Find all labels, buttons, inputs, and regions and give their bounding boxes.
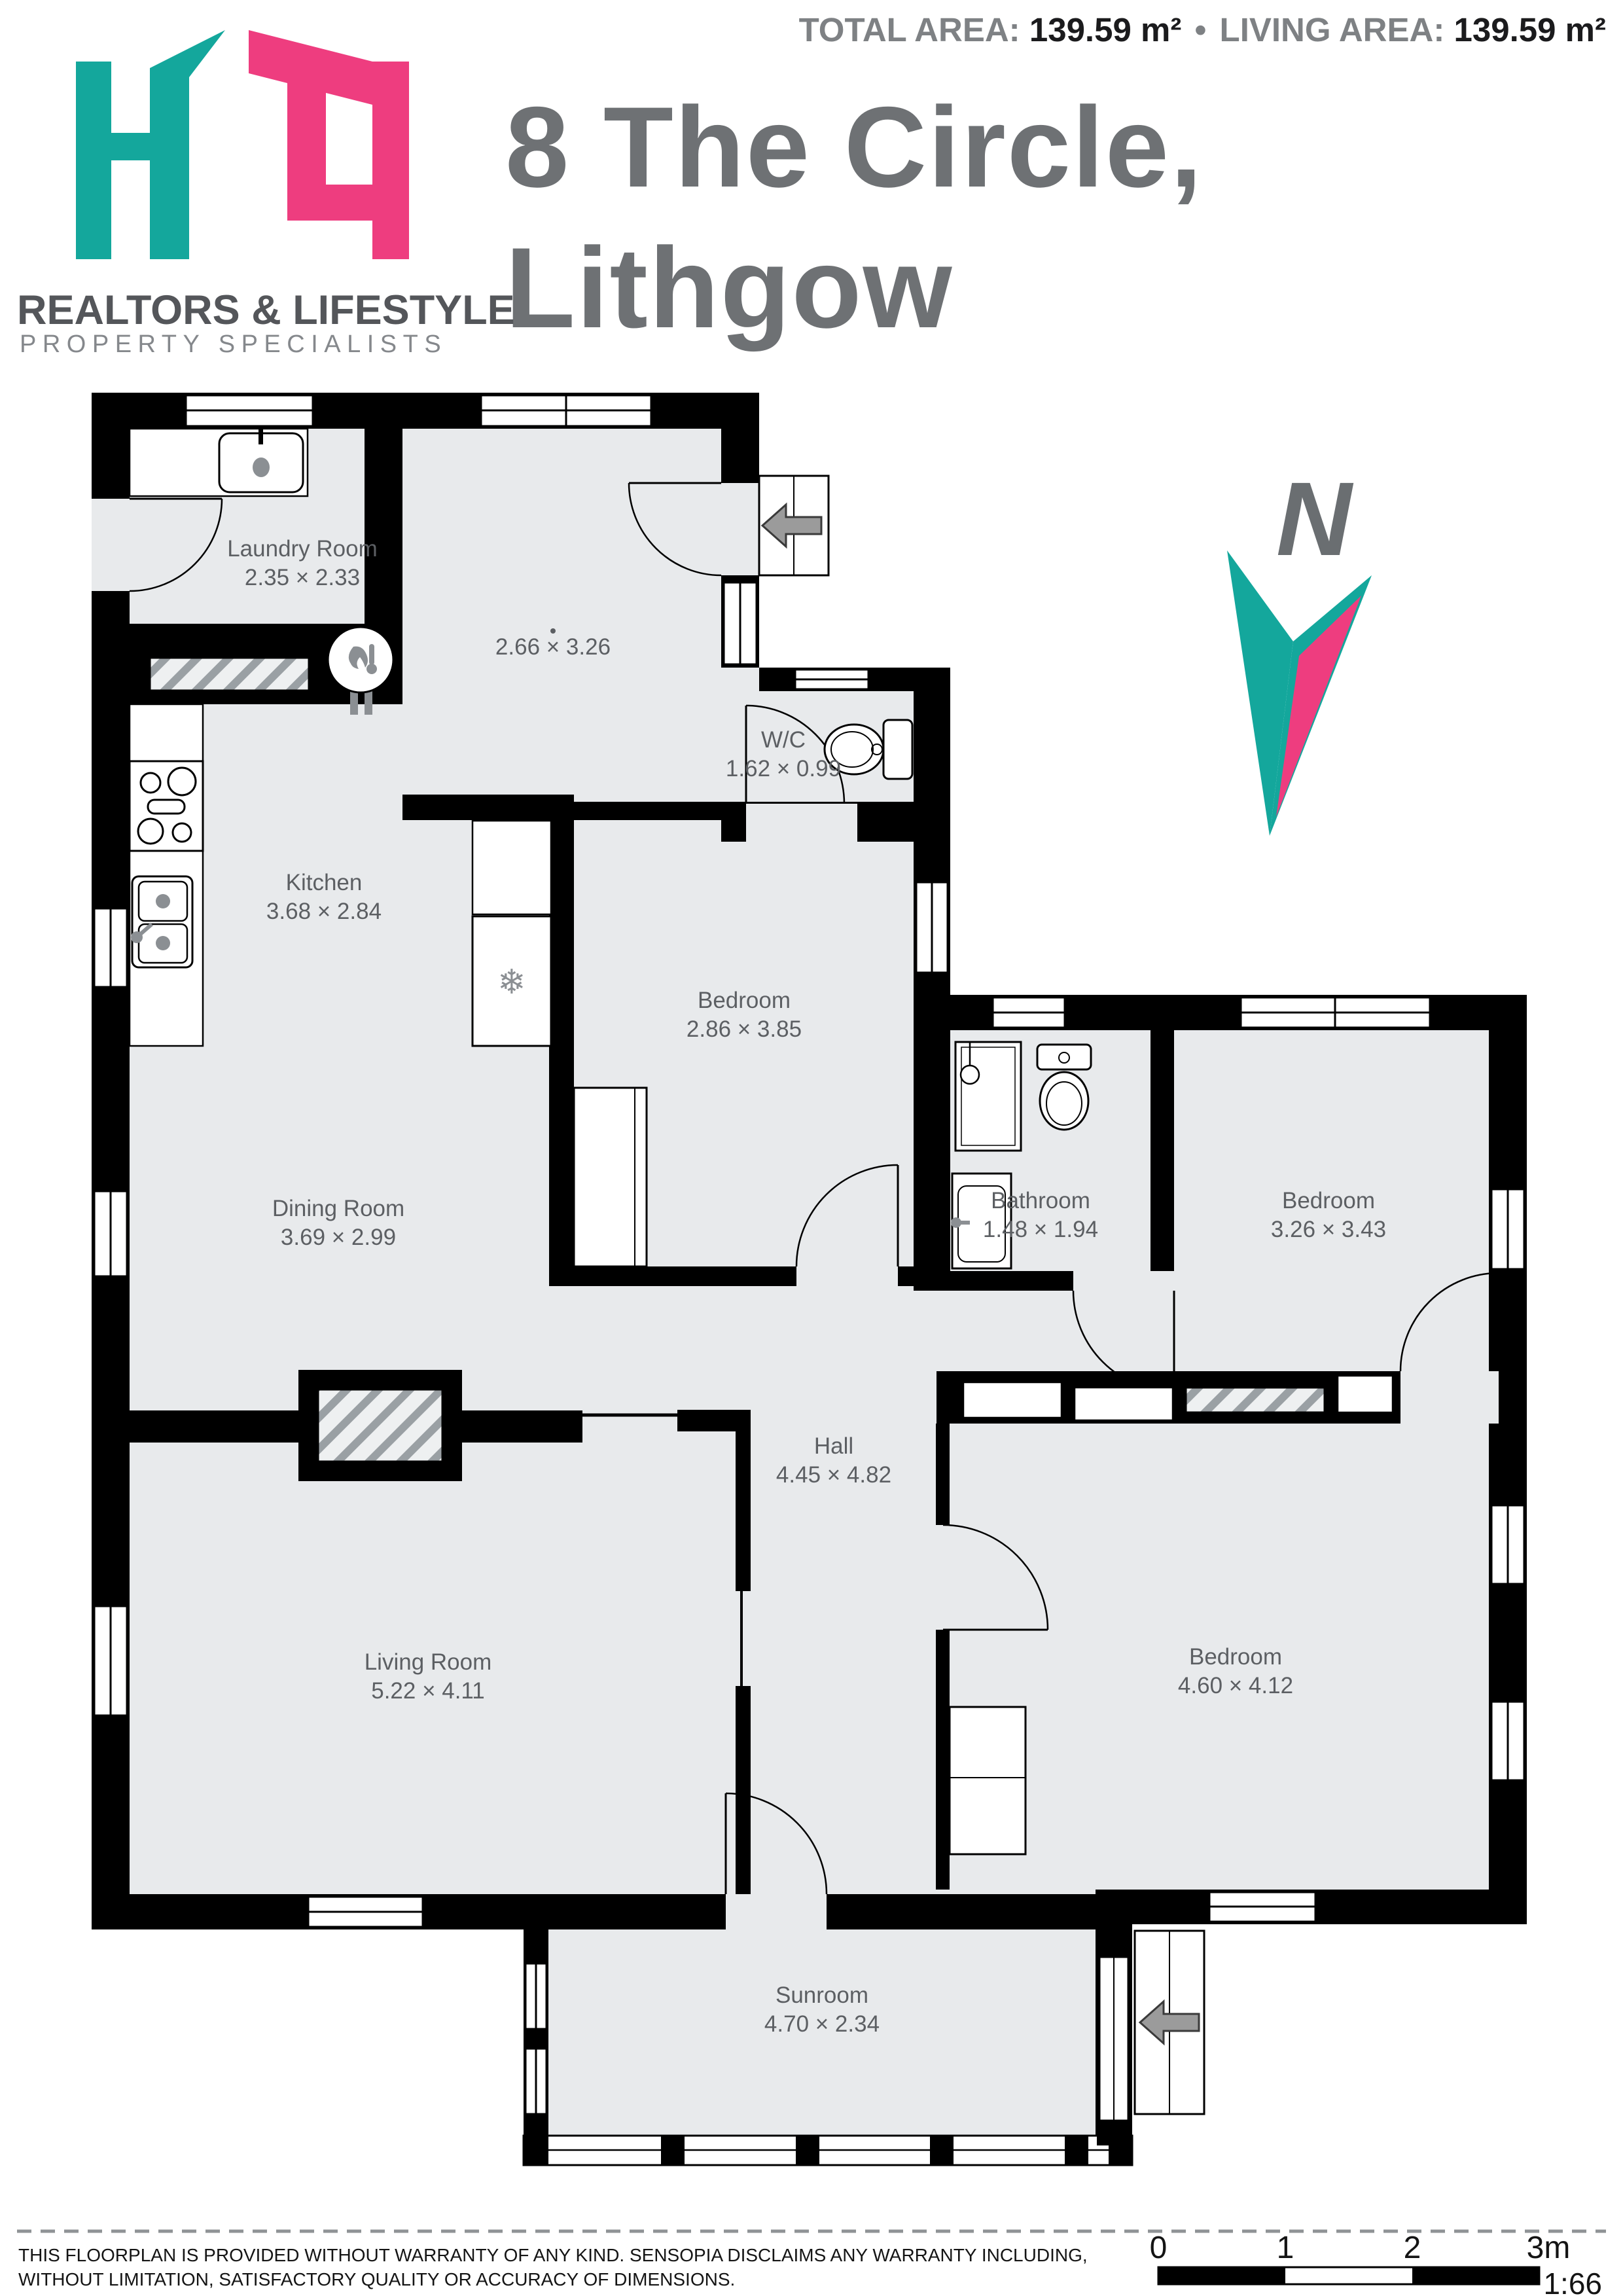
wardrobe-bedroom-bottom	[950, 1707, 1026, 1854]
room-dims-wc: 1.62 × 0.99	[726, 756, 841, 781]
kitchen-sink	[131, 876, 192, 967]
room-dims-kitchen: 3.68 × 2.84	[266, 899, 382, 924]
kitchen-counter	[130, 704, 203, 1046]
room-label-bathroom: Bathroom	[991, 1188, 1090, 1213]
footer: THIS FLOORPLAN IS PROVIDED WITHOUT WARRA…	[17, 2231, 1606, 2296]
room-dims-bedroom-right: 3.26 × 3.43	[1271, 1217, 1386, 1242]
room-label-hall: Hall	[814, 1433, 853, 1459]
room-label-laundry: Laundry Room	[227, 536, 378, 562]
entry-porch-bottom	[1135, 1931, 1204, 2114]
room-dims-bedroom-bottom: 4.60 × 4.12	[1178, 1673, 1293, 1698]
total-area-value: 139.59 m²	[1029, 11, 1182, 48]
scale-tick-0: 0	[1150, 2231, 1168, 2265]
room-dims-sunroom: 4.70 × 2.34	[764, 2011, 880, 2037]
entry-porch-top	[759, 476, 829, 575]
scale-tick-1: 1	[1277, 2231, 1294, 2265]
scale-ratio: 1:66	[1543, 2267, 1602, 2296]
scale-bar: 0 1 2 3m 1:66	[1150, 2231, 1602, 2296]
fridge: ❄	[473, 916, 551, 1046]
room-label-bedroom-mid: Bedroom	[698, 988, 791, 1013]
page-title-line1: 8 The Circle,	[505, 77, 1204, 218]
room-dims-entry: 2.66 × 3.26	[495, 634, 611, 660]
room-label-sunroom: Sunroom	[776, 1982, 868, 2008]
bathroom-toilet	[1037, 1045, 1091, 1130]
room-dims-hall: 4.45 × 4.82	[776, 1462, 891, 1488]
fireplace-dining-living	[298, 1370, 462, 1481]
stove	[130, 761, 203, 851]
room-label-bedroom-right: Bedroom	[1282, 1188, 1375, 1213]
room-label-living: Living Room	[365, 1649, 492, 1675]
room-dims-bedroom-mid: 2.86 × 3.85	[687, 1016, 802, 1042]
room-name-dot	[550, 628, 556, 634]
snowflake-icon: ❄	[497, 963, 526, 1001]
living-area-label: LIVING AREA:	[1220, 11, 1445, 48]
floorplan-page: ❄	[0, 0, 1623, 2296]
laundry-sink	[130, 429, 308, 496]
laundry-wall-hatch	[150, 658, 309, 691]
room-dims-dining: 3.69 × 2.99	[281, 1225, 396, 1250]
room-label-wc: W/C	[761, 727, 806, 753]
room-dims-living: 5.22 × 4.11	[371, 1678, 485, 1704]
shower	[955, 1042, 1021, 1151]
compass-north-label: N	[1276, 460, 1354, 577]
compass: N	[1227, 460, 1372, 836]
bedroom-wall-hatch	[1186, 1388, 1325, 1412]
kitchen-cupboard	[473, 821, 551, 914]
total-area-label: TOTAL AREA:	[799, 11, 1020, 48]
scale-tick-2: 2	[1404, 2231, 1421, 2265]
area-separator: •	[1191, 11, 1211, 48]
area-summary: TOTAL AREA: 139.59 m² • LIVING AREA: 139…	[799, 10, 1606, 49]
disclaimer-line2: WITHOUT LIMITATION, SATISFACTORY QUALITY…	[18, 2269, 735, 2289]
room-label-dining: Dining Room	[272, 1196, 404, 1221]
page-title-line2: Lithgow	[505, 218, 1204, 359]
room-label-kitchen: Kitchen	[286, 870, 363, 895]
wardrobe-bedroom-mid	[574, 1088, 647, 1266]
scale-tick-3: 3m	[1527, 2231, 1571, 2265]
brand-name: REALTORS & LIFESTYLE	[17, 287, 515, 334]
disclaimer-line1: THIS FLOORPLAN IS PROVIDED WITHOUT WARRA…	[18, 2245, 1088, 2265]
room-dims-bathroom: 1.48 × 1.94	[983, 1217, 1098, 1242]
room-dims-laundry: 2.35 × 2.33	[245, 565, 360, 590]
room-label-bedroom-bottom: Bedroom	[1189, 1644, 1282, 1670]
brand-tagline: PROPERTY SPECIALISTS	[20, 331, 447, 359]
page-title: 8 The Circle, Lithgow	[505, 77, 1204, 359]
brand-logo-icon	[76, 30, 409, 259]
living-area-value: 139.59 m²	[1454, 11, 1607, 48]
